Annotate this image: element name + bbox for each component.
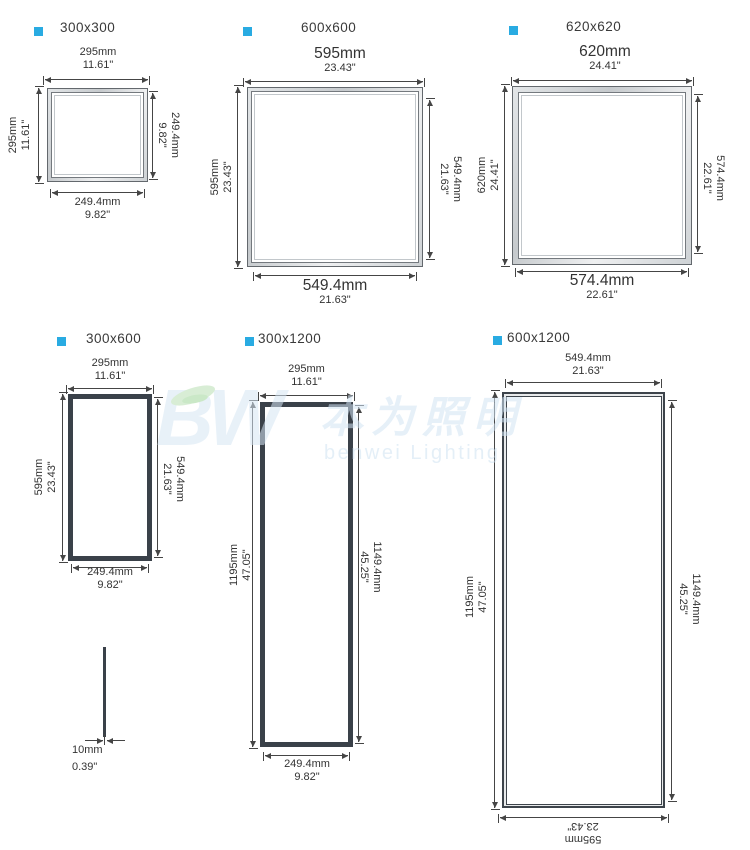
bullet-icon	[509, 26, 518, 35]
dim-top-in: 11.61"	[260, 376, 353, 389]
dim-line-left	[62, 394, 63, 561]
dim-line-right	[671, 402, 672, 800]
tick	[416, 272, 417, 281]
dim-right-label: 1149.4mm 45.25"	[357, 541, 383, 592]
dim-line-thickness-right	[107, 740, 125, 741]
tick	[149, 91, 158, 92]
panel-frame	[260, 402, 353, 747]
tick	[491, 390, 500, 391]
dim-top-label: 295mm 11.61"	[52, 46, 144, 72]
tick	[59, 392, 68, 393]
thickness-in: 0.39"	[72, 761, 103, 774]
panel-size-label: 300x600	[86, 331, 141, 346]
tick	[234, 85, 243, 86]
tick	[154, 557, 163, 558]
dim-right-mm: 1149.4mm	[689, 573, 702, 624]
tick	[694, 253, 703, 254]
tick	[249, 400, 258, 401]
panel-face	[251, 91, 419, 263]
bullet-icon	[243, 27, 252, 36]
dim-line-top	[260, 395, 353, 396]
dim-right-label: 574.4mm 22.61"	[700, 155, 726, 201]
dim-right-in: 45.25"	[676, 573, 689, 624]
panel-size-label: 600x1200	[507, 330, 570, 345]
tick	[153, 385, 154, 394]
dim-bottom-in: 9.82"	[52, 209, 143, 222]
dim-bottom-label: 249.4mm 9.82"	[52, 196, 143, 222]
panel-size-label: 620x620	[566, 19, 621, 34]
dim-left-label: 1195mm 47.05"	[464, 576, 490, 618]
dim-line-right	[157, 399, 158, 556]
dim-right-label: 549.4mm 21.63"	[160, 456, 186, 502]
dim-right-mm: 1149.4mm	[370, 541, 383, 592]
tick	[688, 268, 689, 277]
tick	[35, 86, 44, 87]
tick	[693, 77, 694, 86]
dim-bottom-label: 549.4mm 21.63"	[285, 277, 385, 307]
tick	[498, 814, 499, 823]
tick	[249, 748, 258, 749]
dim-left-mm: 595mm	[209, 159, 222, 196]
dim-bottom-mm: 574.4mm	[552, 272, 652, 289]
panel-size-label: 600x600	[301, 20, 356, 35]
tick	[501, 266, 510, 267]
bullet-icon	[245, 337, 254, 346]
dim-left-in: 11.61"	[20, 117, 33, 154]
dim-bottom-label: 574.4mm 22.61"	[552, 272, 652, 302]
dim-left-label: 595mm 23.43"	[33, 459, 59, 496]
dim-line-bottom	[265, 755, 348, 756]
tick	[234, 268, 243, 269]
dim-bottom-label: 249.4mm 9.82"	[266, 758, 348, 784]
thickness-mm: 10mm	[72, 744, 103, 757]
tick	[426, 259, 435, 260]
panel-dimensions-diagram: 300x300 295mm 11.61" 295mm 11.61" 249.4m…	[0, 0, 750, 850]
tick	[355, 405, 364, 406]
dim-left-in: 47.05"	[477, 576, 490, 618]
dim-bottom-mm: 549.4mm	[285, 277, 385, 294]
tick	[35, 183, 44, 184]
tick	[661, 379, 662, 388]
dim-left-label: 620mm 24.41"	[476, 157, 502, 194]
panel-frame	[47, 88, 148, 182]
dim-top-mm: 620mm	[555, 43, 655, 60]
dim-line-thickness-left	[85, 740, 103, 741]
panel-size-label: 300x1200	[258, 331, 321, 346]
dim-bottom-mm: 595mm	[565, 832, 602, 845]
dim-line-top	[45, 79, 148, 80]
panel-edge-profile	[103, 647, 106, 737]
dim-left-mm: 1195mm	[464, 576, 477, 618]
tick	[243, 78, 244, 87]
panel-frame	[68, 394, 152, 561]
tick	[424, 78, 425, 87]
dim-right-label: 549.4mm 21.63"	[437, 156, 463, 202]
dim-right-mm: 574.4mm	[713, 155, 726, 201]
tick	[263, 752, 264, 761]
dim-right-mm: 249.4mm	[168, 112, 181, 158]
dim-right-in: 45.25"	[357, 541, 370, 592]
dim-bottom-in: 9.82"	[266, 771, 348, 784]
panel-face	[506, 396, 662, 805]
panel-frame	[247, 87, 423, 267]
dim-top-mm: 295mm	[260, 363, 353, 376]
tick	[104, 734, 105, 745]
dim-line-top	[513, 80, 692, 81]
dim-line-left	[237, 87, 238, 267]
dim-top-in: 23.43"	[290, 62, 390, 75]
dim-top-in: 11.61"	[52, 59, 144, 72]
dim-top-in: 21.63"	[543, 365, 633, 378]
dim-top-mm: 295mm	[65, 357, 155, 370]
panel-size-label: 300x300	[60, 20, 115, 35]
dim-bottom-in: 23.43"	[565, 819, 602, 832]
panel-frame	[512, 86, 692, 265]
dim-top-label: 549.4mm 21.63"	[543, 352, 633, 378]
dim-top-mm: 549.4mm	[543, 352, 633, 365]
tick	[154, 397, 163, 398]
dim-top-in: 11.61"	[65, 370, 155, 383]
dim-top-mm: 295mm	[52, 46, 144, 59]
dim-line-left	[504, 86, 505, 265]
dim-left-in: 24.41"	[489, 157, 502, 194]
dim-bottom-label: 595mm 23.43"	[565, 819, 602, 845]
tick	[511, 77, 512, 86]
tick	[43, 76, 44, 85]
leaf-icon	[169, 381, 217, 409]
panel-frame	[502, 392, 665, 808]
leaf-icon	[182, 393, 209, 405]
dim-left-label: 595mm 23.43"	[209, 159, 235, 196]
dim-right-label: 1149.4mm 45.25"	[676, 573, 702, 624]
dim-left-in: 23.43"	[222, 159, 235, 196]
tick	[668, 814, 669, 823]
dim-right-label: 249.4mm 9.82"	[155, 112, 181, 158]
dim-line-bottom	[255, 275, 415, 276]
tick	[258, 392, 259, 401]
dim-line-right	[697, 96, 698, 252]
tick	[349, 752, 350, 761]
dim-left-mm: 1195mm	[228, 544, 241, 586]
dim-bottom-mm: 249.4mm	[52, 196, 143, 209]
tick	[149, 179, 158, 180]
dim-left-label: 295mm 11.61"	[7, 117, 33, 154]
bullet-icon	[57, 337, 66, 346]
dim-line-right	[152, 93, 153, 178]
dim-line-bottom	[52, 192, 143, 193]
tick	[253, 272, 254, 281]
dim-line-top	[245, 81, 423, 82]
tick	[426, 98, 435, 99]
dim-line-left	[494, 392, 495, 808]
tick	[355, 743, 364, 744]
dim-line-bottom	[500, 817, 667, 818]
dim-bottom-in: 21.63"	[285, 294, 385, 307]
dim-right-mm: 549.4mm	[450, 156, 463, 202]
dim-line-left	[38, 88, 39, 182]
tick	[515, 268, 516, 277]
dim-left-mm: 620mm	[476, 157, 489, 194]
dim-right-mm: 549.4mm	[173, 456, 186, 502]
dim-right-in: 22.61"	[700, 155, 713, 201]
tick	[144, 189, 145, 198]
dim-left-in: 23.43"	[46, 459, 59, 496]
tick	[50, 189, 51, 198]
dim-right-in: 9.82"	[155, 112, 168, 158]
tick	[59, 562, 68, 563]
dim-left-label: 1195mm 47.05"	[228, 544, 254, 586]
dim-left-mm: 295mm	[7, 117, 20, 154]
dim-line-top	[507, 382, 660, 383]
dim-line-right	[429, 100, 430, 258]
dim-top-label: 620mm 24.41"	[555, 43, 655, 73]
panel-face	[518, 92, 686, 259]
tick	[694, 94, 703, 95]
tick	[668, 801, 677, 802]
dim-top-mm: 595mm	[290, 45, 390, 62]
tick	[354, 392, 355, 401]
dim-bottom-in: 22.61"	[552, 289, 652, 302]
thickness-label: 10mm 0.39"	[72, 744, 103, 774]
dim-left-in: 47.05"	[241, 544, 254, 586]
dim-top-label: 295mm 11.61"	[65, 357, 155, 383]
dim-bottom-mm: 249.4mm	[266, 758, 348, 771]
panel-face	[51, 92, 144, 178]
bullet-icon	[34, 27, 43, 36]
tick	[505, 379, 506, 388]
bullet-icon	[493, 336, 502, 345]
dim-right-in: 21.63"	[160, 456, 173, 502]
dim-line-top	[68, 388, 152, 389]
tick	[668, 400, 677, 401]
dim-right-in: 21.63"	[437, 156, 450, 202]
dim-top-label: 295mm 11.61"	[260, 363, 353, 389]
tick	[491, 809, 500, 810]
tick	[149, 76, 150, 85]
dim-top-in: 24.41"	[555, 60, 655, 73]
dim-bottom-in: 9.82"	[70, 579, 150, 592]
dim-left-mm: 595mm	[33, 459, 46, 496]
dim-bottom-label: 249.4mm 9.82"	[70, 566, 150, 592]
dim-bottom-mm: 249.4mm	[70, 566, 150, 579]
tick	[501, 84, 510, 85]
dim-top-label: 595mm 23.43"	[290, 45, 390, 75]
